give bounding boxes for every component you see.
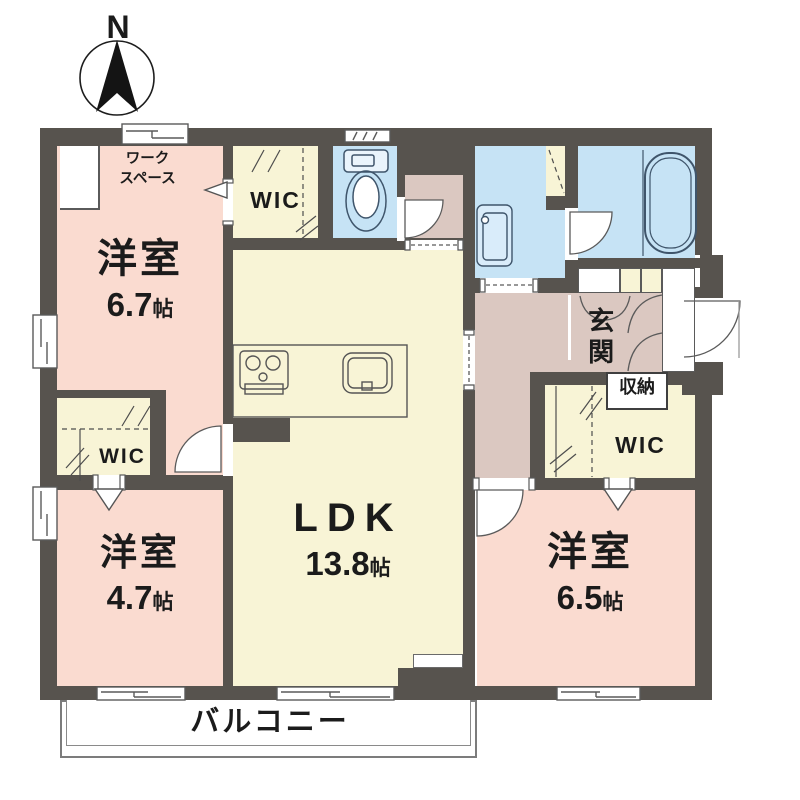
wall-wic-toilet — [318, 146, 333, 238]
wic-east-label: WIC — [598, 433, 683, 458]
bedroom-se-size: 6.5帖 — [490, 580, 690, 616]
sliding-door-washroom-hall — [480, 278, 538, 293]
opening-toilet-door — [397, 197, 405, 241]
bedroom-sw-label: 洋室 4.7帖 — [57, 533, 223, 616]
workspace-label-line1: ワーク — [95, 150, 200, 170]
entrance-label: 玄関 — [585, 300, 614, 376]
shoe-cabinet-cell-1 — [620, 268, 641, 293]
wall-kitchen-stub — [225, 418, 290, 442]
linen-shelf-floor — [546, 146, 566, 196]
bedroom-sw-size-unit: 帖 — [152, 591, 173, 614]
opening-bedroom-nw-door — [223, 424, 233, 476]
room-toilet-floor — [333, 146, 397, 240]
north-arrow-icon — [96, 40, 138, 112]
wic-north-label: WIC — [233, 188, 318, 213]
ldk-size-unit: 帖 — [370, 557, 391, 580]
opening-bedroom-se-door — [475, 478, 535, 490]
bedroom-sw-name: 洋室 — [57, 533, 223, 574]
balcony-label: バルコニー — [100, 707, 440, 739]
sliding-door-ldk-toilet-hall — [405, 240, 463, 250]
ldk-counter-niche — [413, 654, 463, 668]
wall-wic-west-right — [150, 390, 166, 483]
storage-label: 収納 — [606, 378, 668, 398]
opening-wic-west — [95, 475, 123, 490]
bedroom-nw-name: 洋室 — [60, 237, 220, 281]
opening-wic-east — [606, 478, 634, 490]
ldk-size: 13.8帖 — [248, 546, 448, 582]
wall-bedroom-nw-sw — [57, 475, 233, 490]
wall-ldk-east — [463, 146, 475, 686]
room-ldk-floor — [233, 250, 463, 686]
wall-hall-wic-east — [530, 372, 545, 478]
shoe-cabinet-cell-2 — [641, 268, 662, 293]
bedroom-nw-label: 洋室 6.7帖 — [60, 237, 220, 323]
ldk-size-value: 13.8 — [305, 545, 369, 582]
wall-toilet-hall-top — [397, 146, 463, 175]
room-bathroom-floor — [578, 146, 695, 258]
wall-bath-south — [565, 258, 712, 268]
workspace-label-line2: スペース — [95, 170, 200, 190]
wall-linen-stub — [546, 196, 566, 210]
wall-west-rooms-ldk — [223, 146, 233, 686]
bedroom-se-size-unit: 帖 — [602, 591, 623, 614]
entrance-step-line — [568, 295, 571, 360]
bedroom-sw-size: 4.7帖 — [57, 580, 223, 616]
wall-right-upper — [695, 128, 712, 255]
ldk-label: LDK 13.8帖 — [248, 496, 448, 582]
wall-storage-right — [668, 372, 695, 385]
bedroom-se-size-value: 6.5 — [557, 579, 603, 616]
opening-bath-door — [565, 208, 578, 260]
opening-bedroom-nw-wic — [223, 182, 233, 224]
wall-right-lower — [695, 362, 712, 686]
wall-bottom — [40, 686, 712, 700]
entrance-cabinet — [662, 268, 695, 372]
ldk-name: LDK — [248, 496, 448, 540]
bedroom-se-name: 洋室 — [490, 530, 690, 574]
bedroom-nw-size-unit: 帖 — [152, 298, 173, 321]
wall-left — [40, 128, 57, 700]
hallway-floor — [475, 293, 530, 478]
compass-icon — [80, 40, 154, 115]
bedroom-se-label: 洋室 6.5帖 — [490, 530, 690, 616]
wall-wic-west-top — [57, 390, 158, 398]
floor-plan: N ワーク スペース 洋室 6.7帖 WIC WIC WIC 玄関 収納 LDK… — [0, 0, 800, 800]
shoe-cabinet-left — [578, 268, 620, 293]
bedroom-nw-size-value: 6.7 — [107, 286, 153, 323]
bedroom-nw-size: 6.7帖 — [60, 287, 220, 323]
bedroom-sw-size-value: 4.7 — [107, 579, 153, 616]
sliding-door-ldk-hall — [463, 330, 475, 390]
workspace-desk — [60, 146, 100, 210]
room-wic-west-floor — [57, 398, 150, 483]
wic-west-label: WIC — [80, 445, 165, 468]
compass-north-label: N — [103, 10, 133, 45]
wall-ldk-south-thick — [398, 668, 475, 686]
workspace-label: ワーク スペース — [95, 150, 200, 189]
wall-top — [40, 128, 712, 146]
